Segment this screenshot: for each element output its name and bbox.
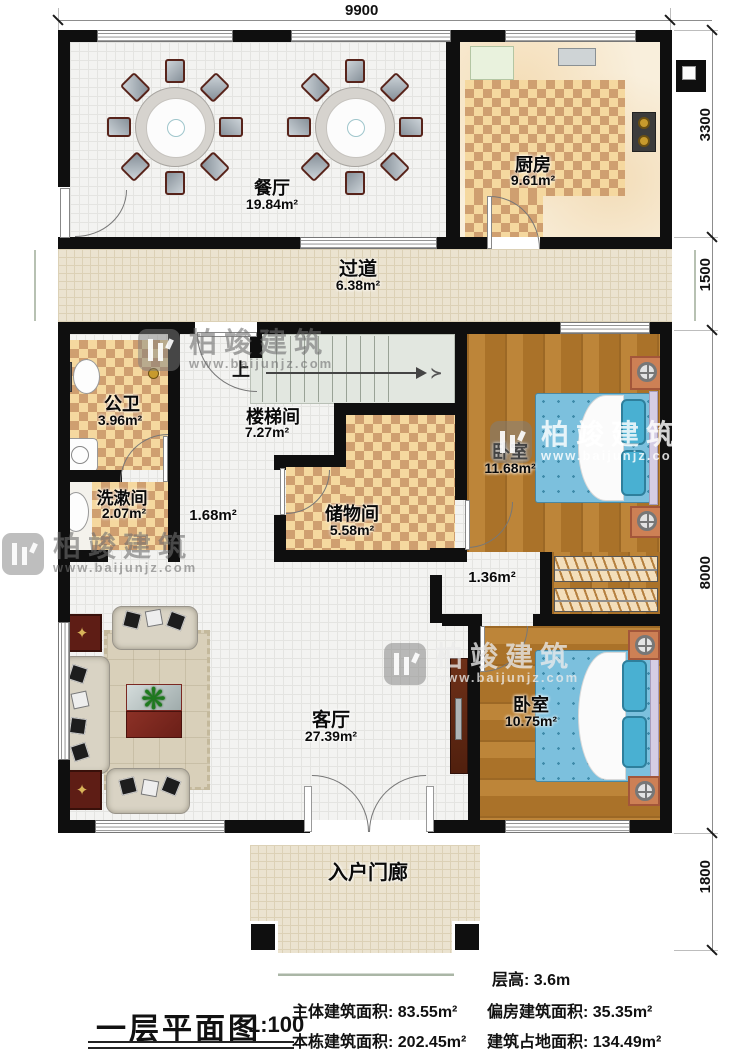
dining-area: 19.84m² (246, 196, 298, 212)
wall-storage-top (340, 403, 467, 415)
washroom-area: 2.07m² (102, 505, 146, 521)
bathroom-area: 3.96m² (98, 412, 142, 428)
stat-main-area: 主体建筑面积: 83.55m² (292, 998, 457, 1022)
dim-right-8000: 8000 (697, 556, 714, 589)
wall-bedroom-bottom-left (468, 626, 480, 820)
window-dining-top-2 (291, 30, 451, 42)
window-bedroom-bottom (505, 820, 630, 833)
wall-corridor-top-2 (437, 237, 487, 249)
wall-corridor-bottom-1 (58, 322, 195, 334)
lamp-icon (637, 362, 657, 382)
bed-bottom-headboard (650, 652, 659, 780)
dining-table-1 (135, 87, 215, 167)
porch-column-right (452, 921, 482, 953)
hall-door-leaf (197, 332, 257, 337)
bedroom-top-door-leaf (465, 500, 470, 550)
entry-door-right-post (426, 786, 434, 832)
wall-hall-mid-stub (430, 548, 467, 560)
wall-dining-kitchen (446, 42, 460, 237)
floor-plan-canvas: ≻ 上 ❋ ✦ ✦ 餐厅 19.84m² 厨房 9.61m² 过道 6.38m²… (0, 0, 750, 1054)
chair-icon (165, 171, 185, 195)
porch-label: 入户门廊 (328, 856, 408, 885)
wall-right-1 (660, 42, 672, 237)
wall-left-1 (58, 42, 70, 187)
dim-right-3300: 3300 (697, 108, 714, 141)
stat-annex-area: 偏房建筑面积: 35.35m² (487, 998, 652, 1022)
wall-bottom-3 (428, 820, 505, 833)
fridge (470, 46, 514, 80)
wall-washroom-bottom (58, 550, 108, 562)
stair-up-label: 上 (232, 356, 250, 382)
lamp-icon (635, 635, 655, 655)
chair-icon (165, 59, 185, 83)
lamp-icon (637, 511, 657, 531)
stat-building-area: 本栋建筑面积: 202.45m² (292, 1028, 466, 1052)
washing-machine-door (71, 446, 89, 464)
chair-icon (107, 117, 131, 137)
wardrobe-2 (554, 588, 658, 612)
bedroom-bottom-area: 10.75m² (505, 713, 557, 729)
kitchen-area: 9.61m² (511, 172, 555, 188)
title-underline-2 (88, 1047, 294, 1049)
wall-corridor-top-3 (540, 237, 672, 249)
dining-door-leaf (60, 188, 70, 238)
wall-top-3 (451, 30, 505, 42)
corridor-left-steps (12, 249, 58, 322)
wall-corridor-bottom-3 (650, 322, 672, 334)
bedroom-bottom-door-leaf (480, 626, 485, 672)
sofa-pillow (145, 609, 164, 628)
entry-door-left-post (304, 786, 312, 832)
wall-bottom-2 (225, 820, 310, 833)
hall-mid-area: 1.36m² (468, 569, 516, 586)
chair-icon (345, 59, 365, 83)
wall-bedroom-bottom-top-a (442, 614, 482, 626)
kitchen-sink (558, 48, 596, 66)
corridor-area: 6.38m² (336, 277, 380, 293)
wall-top-4 (636, 30, 672, 42)
dining-table-2 (315, 87, 395, 167)
tv-screen (455, 698, 462, 740)
stair-treads (262, 336, 402, 402)
chair-icon (345, 171, 365, 195)
wall-bedroom-top-left (455, 334, 467, 500)
dim-top-label: 9900 (345, 2, 378, 19)
kitchen-door-leaf (487, 196, 492, 249)
wall-bottom-4 (630, 820, 672, 833)
bathroom-door-leaf (163, 436, 168, 482)
chimney-flue (682, 66, 696, 80)
chair-icon (219, 117, 243, 137)
bed-bottom-pillow (622, 660, 647, 712)
floor-height: 层高: 3.6m (492, 966, 570, 990)
sofa-pillow (69, 717, 87, 735)
window-dining-top-1 (97, 30, 233, 42)
window-kitchen-top (505, 30, 636, 42)
sofa-pillow (141, 779, 160, 798)
wall-corridor-top-1 (58, 237, 300, 249)
wall-top-1 (58, 30, 97, 42)
stat-footprint-area: 建筑占地面积: 134.49m² (487, 1028, 661, 1052)
slider-dining-corridor (300, 237, 437, 249)
wall-bottom-1 (58, 820, 95, 833)
bedroom-top-area: 11.68m² (484, 460, 535, 476)
storage-area: 5.58m² (330, 522, 374, 538)
stair-break-mark: ≻ (430, 364, 443, 382)
bed-top-pillow (621, 450, 646, 496)
bed-top-pillow (621, 399, 646, 445)
stairwell-area: 7.27m² (245, 424, 289, 440)
plant-icon: ❋ (141, 682, 166, 717)
porch-column-left (248, 921, 278, 953)
window-living-left (58, 622, 70, 760)
wall-bathroom-divider (58, 470, 122, 482)
wall-right-2 (660, 325, 672, 833)
living-area: 27.39m² (305, 728, 357, 744)
dim-right-1800: 1800 (697, 860, 714, 893)
wall-corridor-bottom-2 (257, 322, 560, 334)
dim-right-1500: 1500 (697, 258, 714, 291)
bed-bottom-pillow (622, 716, 647, 768)
bed-top-headboard (649, 391, 658, 505)
wall-bedroom-bottom-top-b (533, 614, 660, 626)
faucet-knob (148, 368, 159, 379)
title-underline-1 (88, 1041, 294, 1043)
window-bedroom-top-wall (560, 322, 650, 334)
wall-wardrobe-left (540, 552, 552, 614)
wall-bathroom-right (168, 334, 180, 562)
chair-icon (399, 117, 423, 137)
toilet-bowl (73, 359, 100, 394)
compass-medallion-icon: ✦ (76, 624, 89, 642)
hall-small-area: 1.68m² (189, 507, 237, 524)
stove (632, 112, 656, 152)
dim-line-right (712, 30, 713, 952)
watermark-logo-icon (2, 533, 44, 575)
lamp-icon (635, 781, 655, 801)
storage-door-leaf (280, 468, 285, 515)
dim-line-top (58, 20, 712, 21)
porch-steps (277, 953, 455, 997)
wall-hall-mid-left (430, 575, 442, 623)
window-living-bottom (95, 820, 225, 833)
stair-direction-arrow-icon (416, 367, 427, 379)
wall-top-2 (233, 30, 291, 42)
stair-direction-line (266, 372, 416, 374)
compass-medallion-icon: ✦ (76, 781, 89, 799)
bed-top-blanket (578, 395, 624, 501)
wardrobe-1 (554, 556, 658, 582)
chair-icon (287, 117, 311, 137)
sofa-pillow (71, 691, 90, 710)
